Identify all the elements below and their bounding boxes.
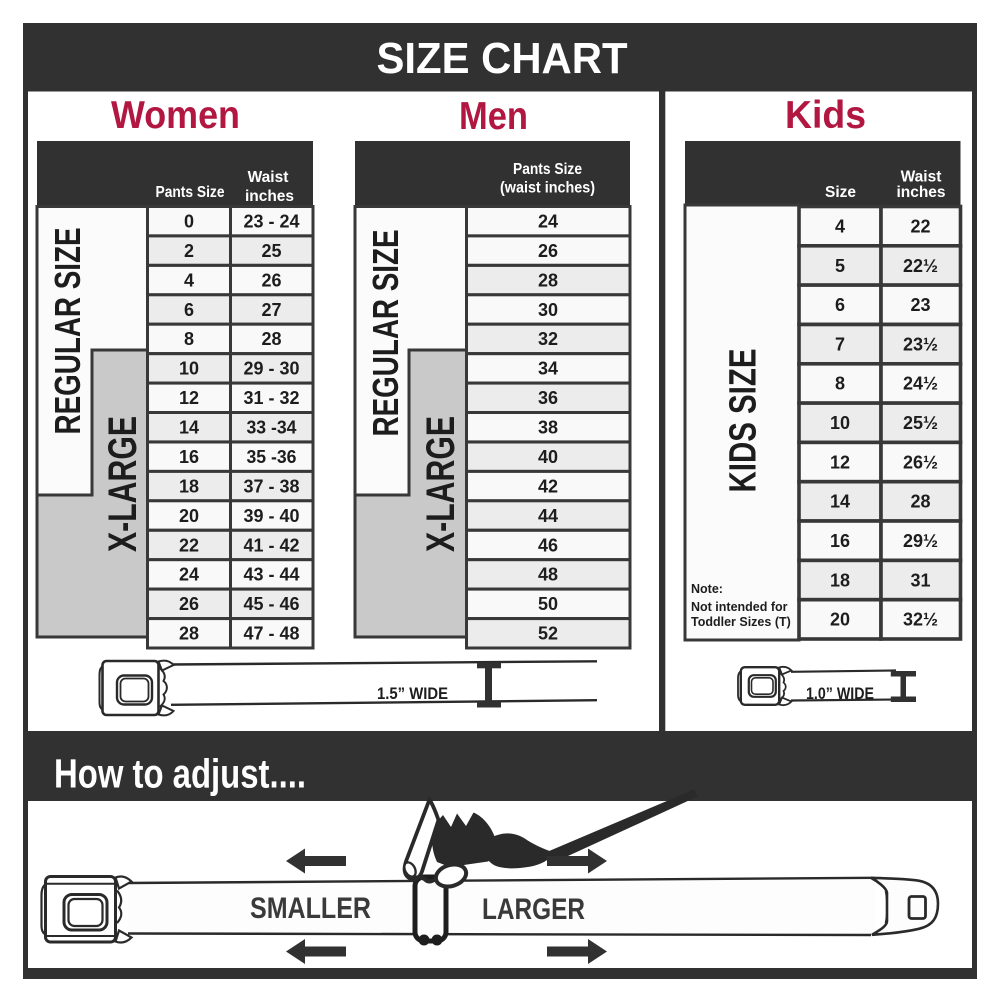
svg-text:44: 44 (538, 506, 558, 526)
svg-text:(waist inches): (waist inches) (500, 180, 595, 197)
svg-text:7: 7 (835, 334, 845, 354)
svg-text:6: 6 (184, 300, 194, 320)
svg-text:42: 42 (538, 476, 558, 496)
svg-text:Not intended for: Not intended for (691, 600, 788, 614)
svg-text:23: 23 (910, 295, 930, 315)
svg-text:22½: 22½ (903, 256, 938, 276)
svg-text:18: 18 (179, 476, 199, 496)
svg-text:inches: inches (896, 184, 945, 201)
svg-text:16: 16 (830, 531, 850, 551)
svg-text:26: 26 (538, 241, 558, 261)
svg-text:34: 34 (538, 359, 558, 379)
svg-text:LARGER: LARGER (482, 893, 585, 926)
svg-text:29 - 30: 29 - 30 (244, 359, 300, 379)
svg-text:26½: 26½ (903, 452, 938, 472)
svg-text:14: 14 (179, 418, 199, 438)
svg-text:Women: Women (111, 94, 240, 137)
svg-text:X-LARGE: X-LARGE (419, 416, 463, 552)
svg-text:22: 22 (179, 535, 199, 555)
svg-text:0: 0 (184, 212, 194, 232)
svg-text:24½: 24½ (903, 374, 938, 394)
svg-text:Toddler Sizes (T): Toddler Sizes (T) (691, 615, 791, 629)
svg-text:32: 32 (538, 329, 558, 349)
svg-text:47 - 48: 47 - 48 (244, 624, 300, 644)
svg-text:10: 10 (179, 359, 199, 379)
svg-text:Pants Size: Pants Size (513, 161, 582, 178)
svg-text:5: 5 (835, 256, 845, 276)
svg-text:32½: 32½ (903, 610, 938, 630)
svg-text:18: 18 (830, 570, 850, 590)
svg-text:41 - 42: 41 - 42 (244, 535, 300, 555)
svg-text:28: 28 (179, 624, 199, 644)
svg-text:Waist: Waist (901, 169, 942, 186)
svg-text:SIZE CHART: SIZE CHART (377, 35, 628, 83)
svg-text:48: 48 (538, 565, 558, 585)
svg-text:8: 8 (835, 374, 845, 394)
svg-text:28: 28 (261, 329, 281, 349)
svg-text:Waist: Waist (248, 169, 289, 186)
svg-text:20: 20 (179, 506, 199, 526)
svg-text:26: 26 (179, 594, 199, 614)
svg-text:33 -34: 33 -34 (247, 418, 297, 438)
svg-text:29½: 29½ (903, 531, 938, 551)
svg-text:12: 12 (179, 388, 199, 408)
svg-text:26: 26 (261, 270, 281, 290)
svg-text:Men: Men (459, 95, 528, 138)
svg-text:4: 4 (835, 217, 845, 237)
svg-text:12: 12 (830, 452, 850, 472)
svg-text:46: 46 (538, 535, 558, 555)
svg-text:Pants Size: Pants Size (156, 184, 225, 201)
svg-text:36: 36 (538, 388, 558, 408)
svg-text:How to adjust....: How to adjust.... (54, 751, 306, 797)
svg-text:SMALLER: SMALLER (250, 892, 371, 925)
svg-text:45 - 46: 45 - 46 (244, 594, 300, 614)
svg-text:24: 24 (538, 212, 558, 232)
svg-text:27: 27 (261, 300, 281, 320)
svg-text:23½: 23½ (903, 334, 938, 354)
svg-text:8: 8 (184, 329, 194, 349)
svg-text:Kids: Kids (785, 94, 866, 137)
svg-text:KIDS SIZE: KIDS SIZE (723, 349, 765, 493)
svg-text:25: 25 (261, 241, 281, 261)
svg-text:Size: Size (825, 184, 856, 201)
svg-text:REGULAR SIZE: REGULAR SIZE (47, 228, 88, 435)
svg-text:1.0” WIDE: 1.0” WIDE (806, 685, 874, 703)
svg-text:30: 30 (538, 300, 558, 320)
svg-text:37 - 38: 37 - 38 (244, 476, 300, 496)
svg-text:16: 16 (179, 447, 199, 467)
svg-text:6: 6 (835, 295, 845, 315)
svg-text:4: 4 (184, 270, 194, 290)
svg-text:REGULAR SIZE: REGULAR SIZE (365, 230, 406, 437)
svg-text:43 - 44: 43 - 44 (244, 565, 300, 585)
svg-text:inches: inches (245, 188, 294, 205)
svg-text:40: 40 (538, 447, 558, 467)
svg-text:20: 20 (830, 610, 850, 630)
svg-text:10: 10 (830, 413, 850, 433)
svg-text:Note:: Note: (691, 582, 723, 596)
svg-text:31: 31 (910, 570, 930, 590)
svg-text:52: 52 (538, 624, 558, 644)
svg-text:X-LARGE: X-LARGE (101, 416, 145, 552)
svg-text:28: 28 (910, 492, 930, 512)
svg-text:35 -36: 35 -36 (247, 447, 297, 467)
svg-text:39 - 40: 39 - 40 (244, 506, 300, 526)
svg-text:25½: 25½ (903, 413, 938, 433)
svg-text:22: 22 (910, 217, 930, 237)
svg-text:50: 50 (538, 594, 558, 614)
svg-text:28: 28 (538, 270, 558, 290)
svg-text:23 - 24: 23 - 24 (244, 212, 300, 232)
svg-text:31 - 32: 31 - 32 (244, 388, 300, 408)
svg-text:38: 38 (538, 418, 558, 438)
svg-text:2: 2 (184, 241, 194, 261)
svg-text:24: 24 (179, 565, 199, 585)
svg-text:1.5” WIDE: 1.5” WIDE (377, 685, 448, 703)
svg-text:14: 14 (830, 492, 850, 512)
